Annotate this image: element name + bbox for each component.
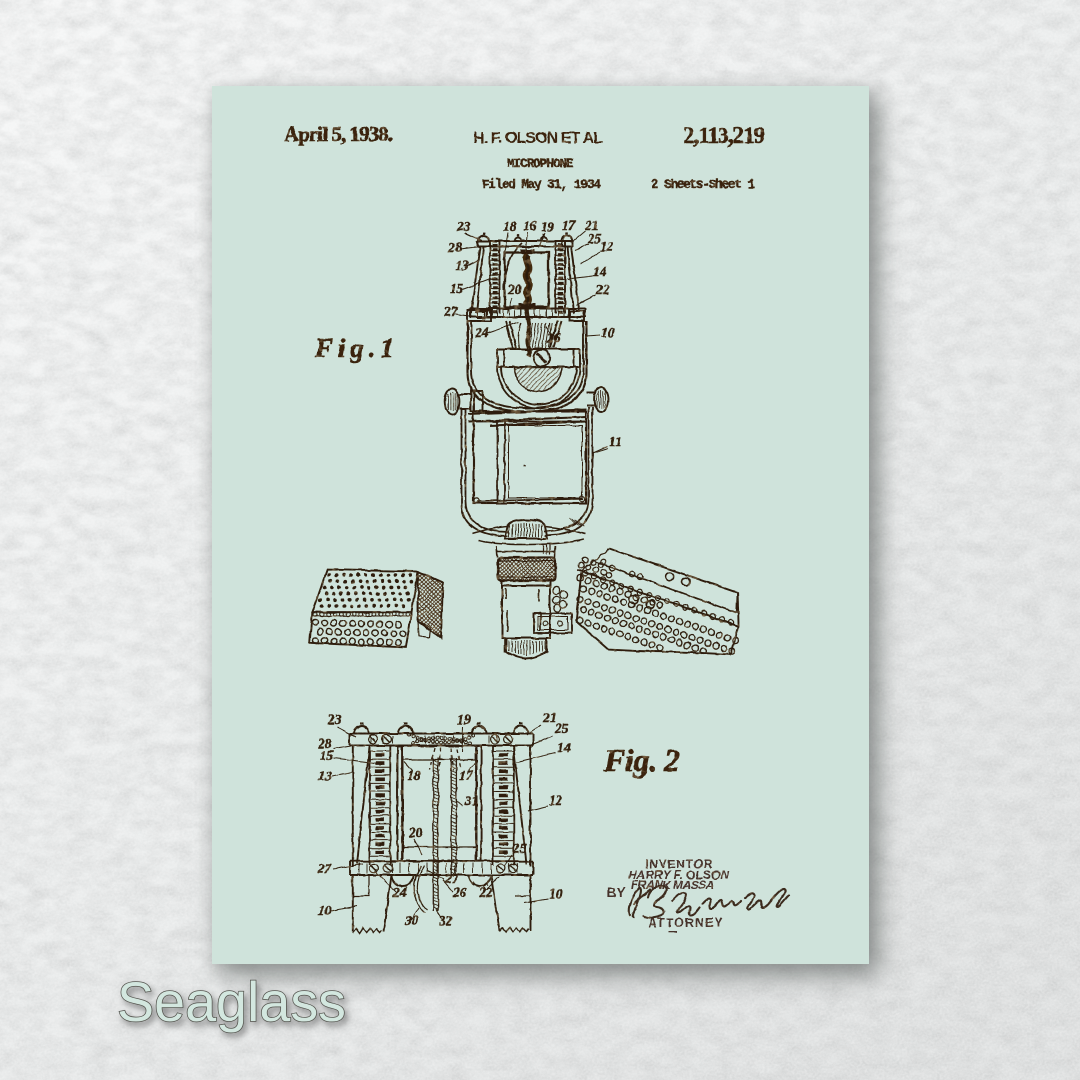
svg-text:10: 10: [601, 325, 615, 340]
svg-text:23: 23: [327, 712, 342, 727]
svg-text:12: 12: [600, 239, 614, 254]
svg-text:11: 11: [609, 434, 622, 449]
svg-text:24: 24: [474, 325, 489, 340]
svg-text:13: 13: [318, 768, 332, 783]
svg-text:2 Sheets-Sheet 1: 2 Sheets-Sheet 1: [651, 177, 755, 192]
svg-text:12: 12: [549, 793, 563, 808]
svg-text:17: 17: [562, 218, 577, 233]
svg-text:Fig. 2: Fig. 2: [603, 742, 682, 778]
svg-text:Filed May 31, 1934: Filed May 31, 1934: [482, 177, 601, 192]
svg-text:13: 13: [455, 258, 469, 273]
svg-text:ATTORNEY: ATTORNEY: [648, 916, 724, 930]
svg-text:28: 28: [447, 240, 462, 255]
svg-text:16: 16: [523, 218, 537, 233]
svg-text:FRANK MASSA: FRANK MASSA: [631, 878, 714, 892]
svg-text:17: 17: [459, 768, 474, 783]
svg-text:15: 15: [320, 748, 334, 763]
svg-text:18: 18: [503, 219, 517, 234]
svg-text:22: 22: [478, 885, 493, 900]
svg-text:22: 22: [595, 282, 610, 297]
svg-text:26: 26: [452, 885, 467, 900]
svg-text:18: 18: [407, 768, 421, 783]
svg-text:2,113,219: 2,113,219: [683, 123, 765, 148]
svg-text:Fig.1: Fig.1: [314, 333, 394, 363]
svg-text:20: 20: [507, 282, 522, 297]
svg-text:H. F. OLSON ET AL: H. F. OLSON ET AL: [473, 130, 604, 147]
svg-text:MICROPHONE: MICROPHONE: [507, 157, 574, 171]
svg-text:30: 30: [404, 913, 419, 928]
svg-text:25: 25: [512, 841, 527, 856]
svg-text:25: 25: [554, 721, 569, 736]
svg-text:April 5, 1938.: April 5, 1938.: [284, 122, 393, 146]
svg-text:10: 10: [549, 886, 563, 901]
svg-text:23: 23: [456, 219, 471, 234]
svg-text:27: 27: [317, 861, 333, 876]
svg-text:10: 10: [318, 903, 332, 918]
svg-text:15: 15: [450, 281, 464, 296]
svg-text:19: 19: [541, 219, 555, 234]
svg-text:14: 14: [557, 740, 571, 755]
svg-text:24: 24: [392, 885, 407, 900]
svg-text:27: 27: [443, 304, 459, 319]
svg-text:BY: BY: [607, 885, 626, 900]
svg-text:Seaglass: Seaglass: [117, 970, 346, 1033]
svg-text:31: 31: [464, 793, 479, 808]
svg-text:14: 14: [593, 264, 607, 279]
svg-text:19: 19: [457, 712, 471, 727]
svg-text:20: 20: [408, 825, 423, 840]
